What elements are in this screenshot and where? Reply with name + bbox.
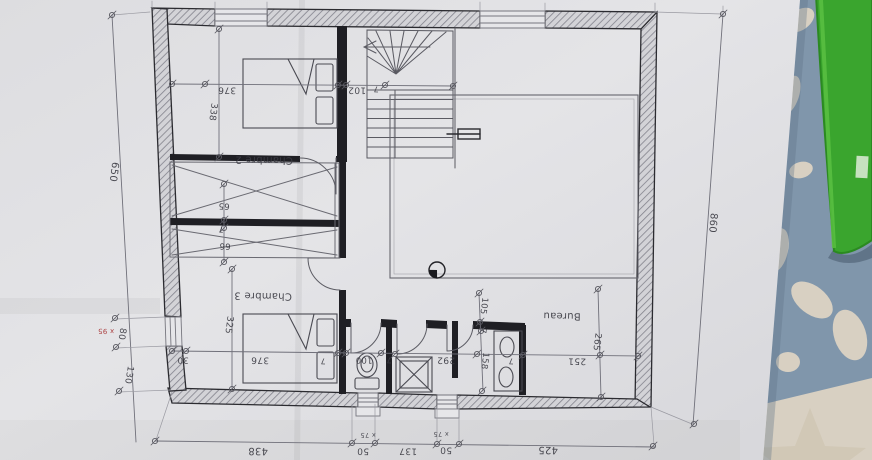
dim-376-chambre3: 376 (251, 354, 269, 364)
dim-7-closet: 7 (218, 225, 223, 234)
green-object-label-sliver (855, 156, 868, 179)
scene: 3761027338Chambre 265766Chambre 33253037… (0, 0, 872, 460)
photo-floor-plan-upside-down: 3761027338Chambre 265766Chambre 33253037… (0, 0, 872, 460)
window-top-center (480, 11, 545, 28)
dim-438-bottom: 438 (248, 445, 268, 456)
annotation-x95-red: x 95 (98, 327, 115, 336)
dim-65-closet: 65 (218, 200, 230, 210)
dim-50-bottom-right: 50 (440, 444, 452, 454)
dim-30-chambre3: 30 (177, 354, 189, 364)
window-top-left (215, 9, 267, 26)
wall-top-middle (267, 9, 480, 28)
wall-bottom-middle (378, 393, 437, 409)
dim-425-bottom: 425 (538, 444, 558, 455)
room-label-chambre-3: Chambre 3 (234, 289, 292, 301)
window-sill-left (356, 407, 380, 416)
dim-100-wc: 100 (355, 354, 372, 364)
window-left (165, 317, 182, 346)
wall-stairwell-west (337, 26, 347, 158)
window-bottom-right (437, 395, 457, 409)
room-label-bureau: Bureau (543, 310, 581, 322)
window-sill-right (435, 409, 459, 418)
annotation-x75-right: x 75 (433, 430, 449, 438)
dim-251-bureau: 251 (568, 355, 586, 365)
dim-7-bathroom: 7 (479, 328, 489, 334)
paper-crease-horizontal (0, 298, 160, 314)
annotation-x75-left: x 75 (360, 431, 376, 439)
dim-860-right: 860 (706, 213, 719, 234)
dim-105-passage: 105 (477, 297, 489, 315)
dim-292-corridor: 292 (437, 354, 455, 364)
wall-left-lower (166, 346, 186, 391)
wall-top-right (545, 11, 657, 29)
dim-80-left: 80 (116, 327, 128, 340)
dim-7-wc: 7 (386, 355, 392, 364)
dim-137-bottom: 137 (399, 445, 417, 455)
dim-7-chambre3-door: 7 (320, 356, 326, 365)
wall-closet-front (339, 162, 346, 258)
dim-158-bathroom: 158 (478, 352, 490, 370)
dim-102-stairs: 102 (348, 84, 366, 94)
dim-66-closet: 66 (219, 240, 231, 250)
dim-376-chambre2: 376 (218, 84, 236, 94)
dim-7-vanity: 7 (508, 356, 514, 365)
room-label-chambre-2: Chambre 2 (235, 153, 293, 165)
dim-7-stairs: 7 (373, 84, 379, 93)
wall-hallway-west (339, 290, 346, 394)
dim-50-bottom-left: 50 (357, 445, 369, 455)
